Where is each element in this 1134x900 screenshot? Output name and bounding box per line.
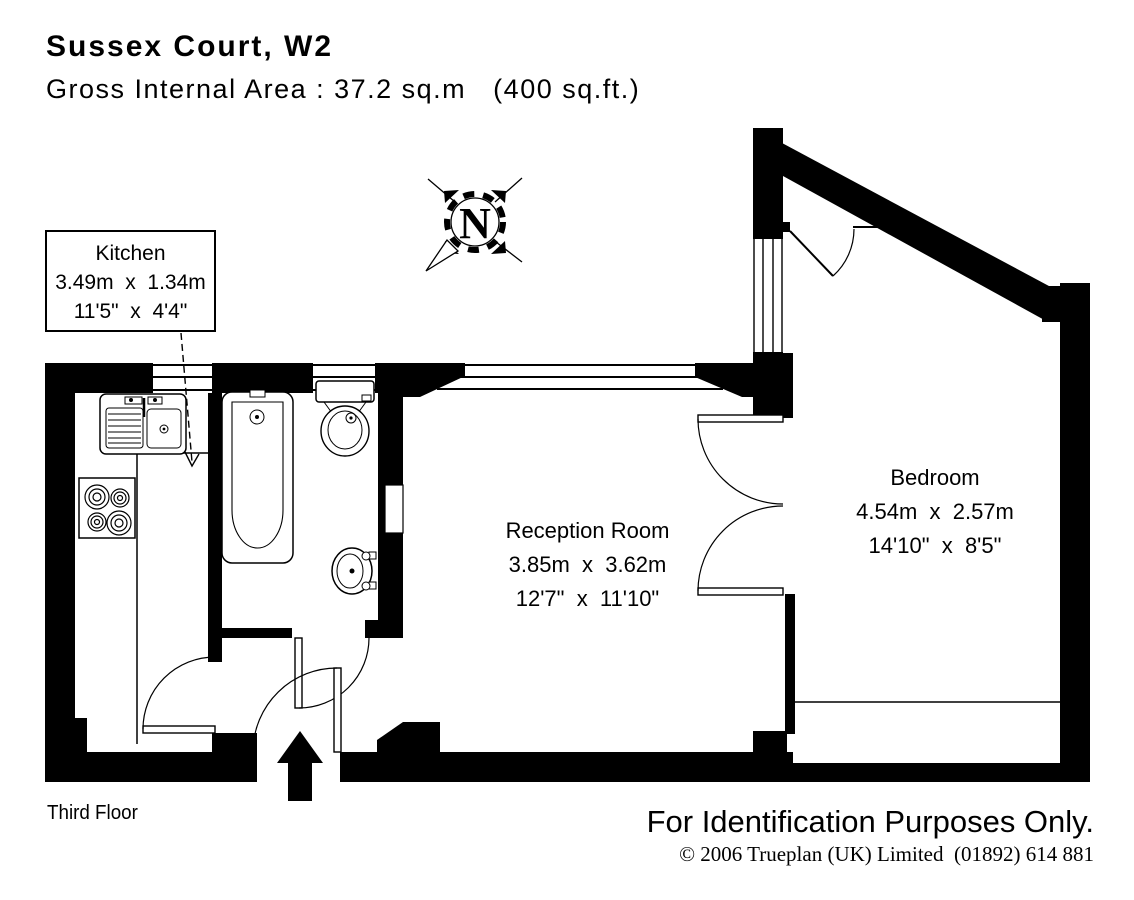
wash-basin <box>332 548 376 594</box>
reception-name: Reception Room <box>455 514 720 548</box>
bathtub <box>222 390 293 563</box>
reception-window <box>437 365 723 389</box>
kitchen-dims-imperial: 11'5" x 4'4" <box>47 297 214 326</box>
reception-label: Reception Room 3.85m x 3.62m 12'7" x 11'… <box>455 514 720 616</box>
wall-reception-bedroom-foot <box>753 731 787 763</box>
compass-north-letter: N <box>459 199 491 248</box>
wall-bedroom-door-stub <box>781 222 790 232</box>
bedroom-door <box>790 229 854 276</box>
compass-needle <box>426 240 458 271</box>
wall-bottom-left <box>45 752 257 782</box>
wall-bedroom-left-upper <box>753 128 783 238</box>
kitchen-dims-metric: 3.49m x 1.34m <box>47 268 214 297</box>
compass-icon: N <box>426 178 522 271</box>
wall-reception-bedroom-lower <box>785 594 795 734</box>
wall-diagonal <box>754 128 1062 322</box>
bedroom-dims-metric: 4.54m x 2.57m <box>805 495 1065 529</box>
walls <box>45 128 1090 782</box>
wall-kitchen-bathroom <box>208 390 222 662</box>
reception-dims-imperial: 12'7" x 11'10" <box>455 582 720 616</box>
kitchen-sink <box>100 394 186 454</box>
bedroom-window <box>753 237 783 354</box>
wall-entry-left-block <box>212 733 257 752</box>
wall-reception-window-jamb-left <box>403 363 465 397</box>
bedroom-label: Bedroom 4.54m x 2.57m 14'10" x 8'5" <box>805 461 1065 563</box>
wall-left <box>45 363 75 782</box>
wall-bathroom-bottom <box>222 628 292 638</box>
floor-label: Third Floor <box>47 802 138 825</box>
entry-arrow-icon <box>277 731 323 801</box>
bath-tap <box>250 390 265 397</box>
toilet <box>316 381 374 456</box>
wall-top-kitchen <box>45 363 153 393</box>
wall-bottom-bedroom <box>785 763 1070 782</box>
floorplan-drawing: N <box>0 0 1134 900</box>
kitchen-door <box>143 657 215 733</box>
wall-stub-hall <box>365 620 378 638</box>
wall-entry-right-block <box>377 722 440 752</box>
bathroom-door <box>295 638 369 708</box>
reception-dims-metric: 3.85m x 3.62m <box>455 548 720 582</box>
wall-left-step <box>75 718 87 754</box>
kitchen-label-box: Kitchen 3.49m x 1.34m 11'5" x 4'4" <box>45 230 216 332</box>
wall-reception-window-jamb-right <box>695 363 755 397</box>
kitchen-hob <box>79 478 135 538</box>
bedroom-name: Bedroom <box>805 461 1065 495</box>
wall-bedroom-left-lower <box>753 353 793 418</box>
kitchen-name: Kitchen <box>47 239 214 268</box>
wall-niche <box>385 485 403 533</box>
copyright-text: © 2006 Trueplan (UK) Limited (01892) 614… <box>679 842 1094 867</box>
disclaimer-text: For Identification Purposes Only. <box>647 804 1094 840</box>
sink-tap-left <box>125 397 142 404</box>
floorplan-page: Sussex Court, W2 Gross Internal Area : 3… <box>0 0 1134 900</box>
wall-bottom-mid <box>340 752 793 782</box>
bedroom-dims-imperial: 14'10" x 8'5" <box>805 529 1065 563</box>
wall-top-bathroom <box>212 363 313 393</box>
kitchen-window <box>153 363 212 393</box>
